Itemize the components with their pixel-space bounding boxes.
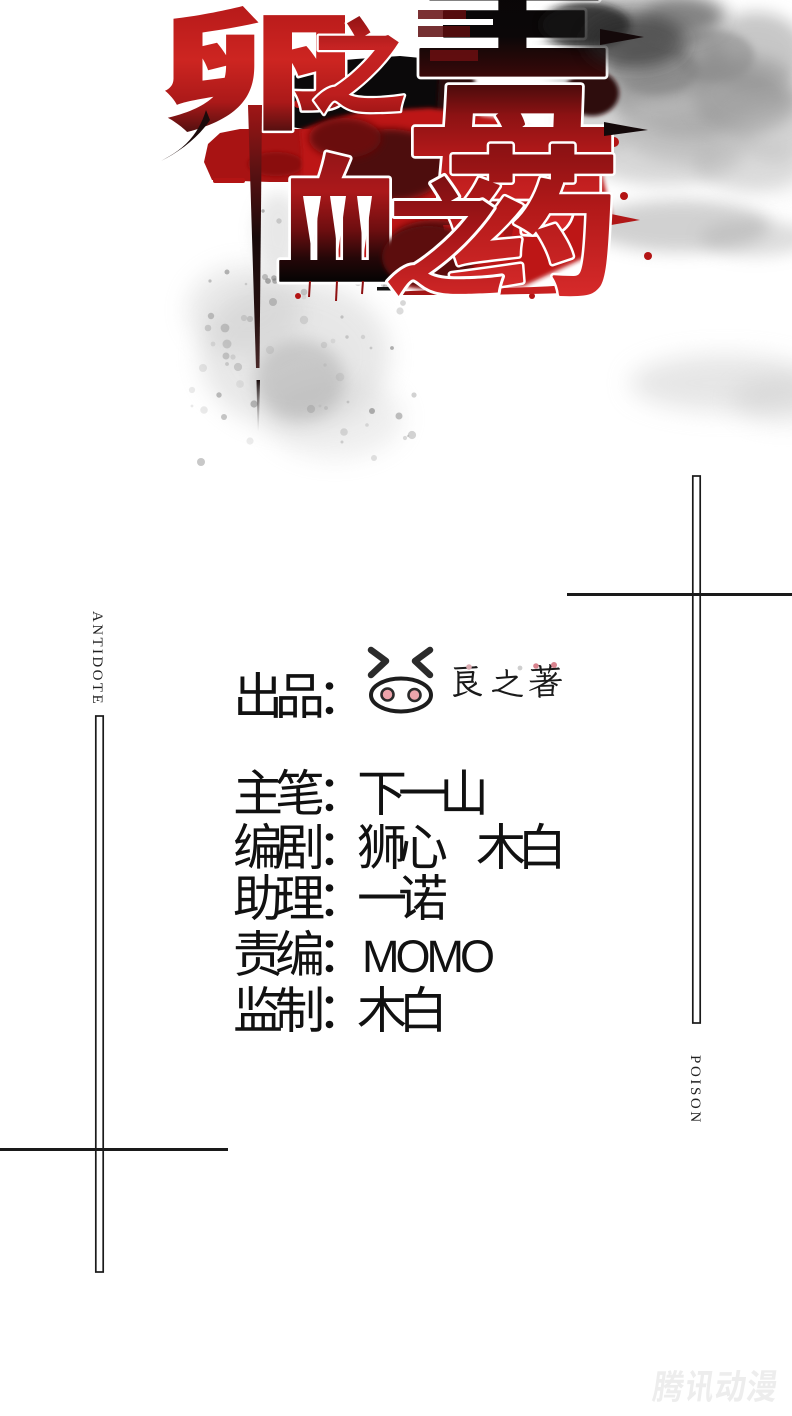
svg-text:MOMO: MOMO bbox=[362, 931, 493, 982]
svg-text:ANTIDOTE: ANTIDOTE bbox=[89, 611, 105, 706]
svg-text:POISON: POISON bbox=[687, 1055, 703, 1125]
